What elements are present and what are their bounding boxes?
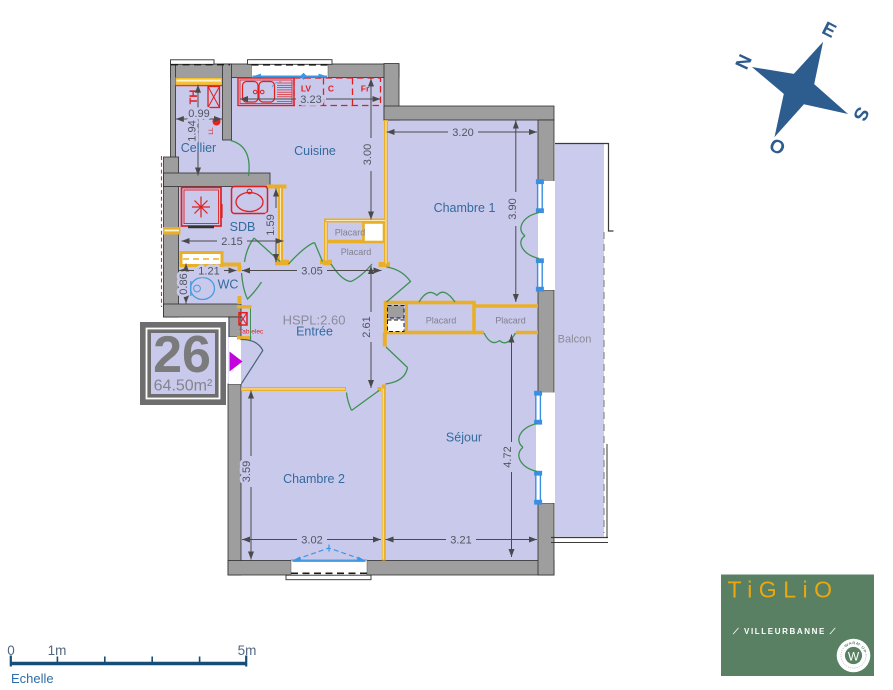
svg-text:26: 26: [153, 326, 211, 384]
svg-text:Tab,elec: Tab,elec: [239, 329, 264, 336]
svg-text:Echelle: Echelle: [11, 671, 54, 686]
svg-text:0.99: 0.99: [188, 108, 209, 120]
svg-text:3.23: 3.23: [300, 94, 321, 106]
svg-text:5m: 5m: [238, 643, 257, 658]
svg-text:Cuisine: Cuisine: [294, 144, 336, 158]
svg-text:Chambre 1: Chambre 1: [434, 201, 496, 215]
svg-text:1.21: 1.21: [198, 266, 219, 278]
svg-text:Cellier: Cellier: [181, 141, 216, 155]
svg-text:3.05: 3.05: [301, 266, 322, 278]
svg-text:Balcon: Balcon: [558, 334, 592, 346]
svg-text:Fr: Fr: [361, 84, 370, 94]
svg-text:LV: LV: [301, 84, 312, 94]
svg-text:3.90: 3.90: [507, 198, 519, 219]
svg-text:SDB: SDB: [230, 220, 256, 234]
svg-text:3.21: 3.21: [450, 535, 471, 547]
svg-text:2.61: 2.61: [361, 316, 373, 337]
svg-text:1.59: 1.59: [265, 214, 277, 235]
svg-text:S: S: [848, 103, 872, 124]
svg-text:O: O: [765, 135, 788, 160]
svg-text:HSPL:2.60: HSPL:2.60: [283, 313, 346, 328]
svg-text:Placard: Placard: [495, 316, 526, 326]
svg-text:C: C: [328, 84, 334, 94]
svg-text:TiGLiO: TiGLiO: [728, 577, 839, 603]
svg-text:Placard: Placard: [426, 316, 457, 326]
svg-text:Séjour: Séjour: [446, 431, 482, 445]
svg-text:Chambre 2: Chambre 2: [283, 472, 345, 486]
svg-text:N: N: [732, 52, 757, 73]
svg-text:4.72: 4.72: [502, 446, 514, 467]
svg-text:3.20: 3.20: [452, 127, 473, 139]
svg-text:Placard: Placard: [335, 228, 366, 238]
svg-text:3.59: 3.59: [241, 461, 253, 482]
svg-text:3.02: 3.02: [301, 535, 322, 547]
svg-text:3.00: 3.00: [362, 144, 374, 165]
svg-text:E: E: [818, 18, 839, 42]
svg-text:W: W: [848, 650, 860, 664]
svg-text:Placard: Placard: [341, 247, 372, 257]
svg-text:⟋ VILLEURBANNE ⟋: ⟋ VILLEURBANNE ⟋: [732, 627, 837, 636]
svg-text:1m: 1m: [48, 643, 67, 658]
svg-text:1.94: 1.94: [187, 120, 199, 141]
svg-text:2.15: 2.15: [221, 236, 242, 248]
svg-text:0: 0: [7, 643, 15, 658]
svg-text:LL: LL: [208, 127, 215, 135]
svg-text:64.50m²: 64.50m²: [154, 378, 213, 395]
svg-text:0.86: 0.86: [178, 273, 190, 294]
svg-text:WC: WC: [218, 278, 239, 292]
